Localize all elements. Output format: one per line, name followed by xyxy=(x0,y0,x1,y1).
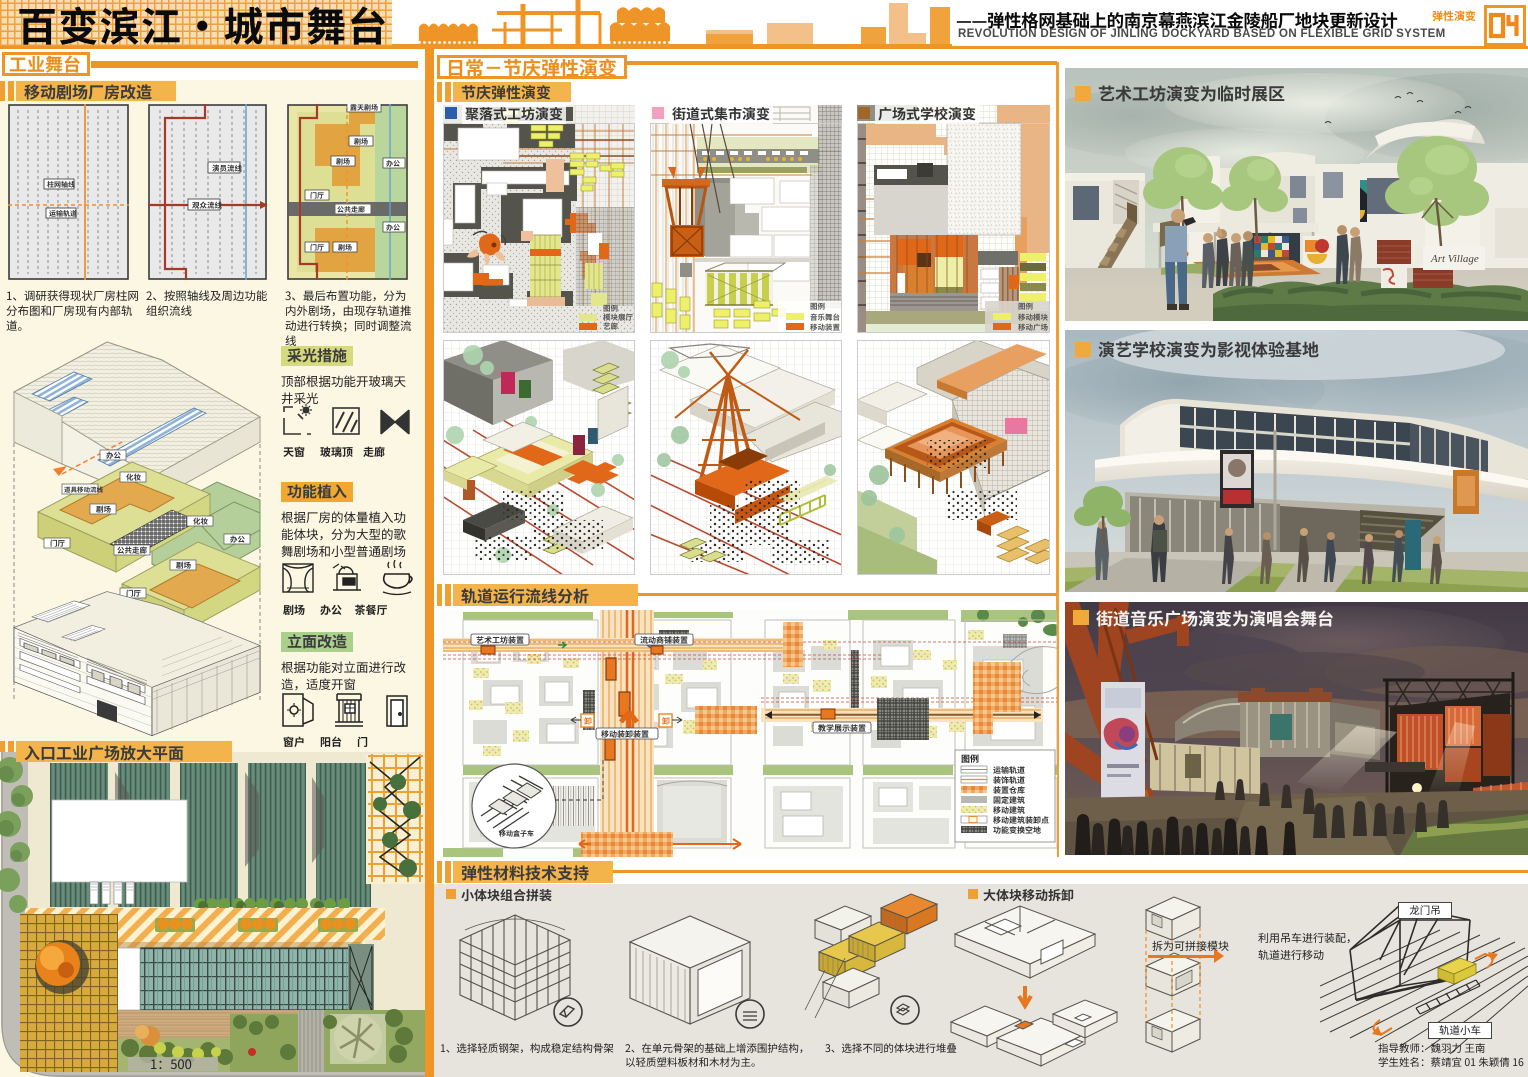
svg-text:演员流线: 演员流线 xyxy=(212,163,242,174)
svg-text:门厅: 门厅 xyxy=(310,191,324,201)
svg-text:艺术工坊装置: 艺术工坊装置 xyxy=(476,635,524,646)
svg-text:化妆: 化妆 xyxy=(126,472,141,483)
svg-text:卸: 卸 xyxy=(584,716,592,727)
svg-text:图例: 图例 xyxy=(810,301,825,312)
svg-text:图例: 图例 xyxy=(1018,301,1034,312)
svg-text:街道音乐广场演变为演唱会舞台: 街道音乐广场演变为演唱会舞台 xyxy=(1096,605,1334,630)
svg-text:办公: 办公 xyxy=(386,159,400,169)
svg-text:道具移动流线: 道具移动流线 xyxy=(64,484,104,494)
svg-text:移动装卸装置: 移动装卸装置 xyxy=(601,729,649,740)
svg-text:办公: 办公 xyxy=(230,534,245,545)
svg-text:移动盒子车: 移动盒子车 xyxy=(499,829,534,839)
svg-text:移动广场: 移动广场 xyxy=(1018,322,1048,333)
svg-text:门厅: 门厅 xyxy=(50,538,65,549)
svg-text:教学展示装置: 教学展示装置 xyxy=(818,723,866,734)
svg-text:露天剧场: 露天剧场 xyxy=(350,104,378,113)
svg-text:运输轨道: 运输轨道 xyxy=(49,209,77,219)
svg-text:剧场: 剧场 xyxy=(354,137,368,147)
svg-text:剧场: 剧场 xyxy=(96,504,111,515)
svg-text:Art Village: Art Village xyxy=(1430,253,1479,265)
svg-text:办公: 办公 xyxy=(386,223,400,233)
svg-text:公共走廊: 公共走廊 xyxy=(337,205,365,215)
svg-text:公共走廊: 公共走廊 xyxy=(117,545,147,556)
svg-text:功能变换空地: 功能变换空地 xyxy=(993,825,1041,836)
svg-text:艺廊: 艺廊 xyxy=(603,321,618,332)
svg-text:艺术工坊演变为临时展区: 艺术工坊演变为临时展区 xyxy=(1098,80,1285,105)
svg-text:柱网轴线: 柱网轴线 xyxy=(47,180,75,190)
svg-text:流动商铺装置: 流动商铺装置 xyxy=(640,635,688,646)
svg-text:剧场: 剧场 xyxy=(336,157,350,167)
svg-text:1：500: 1：500 xyxy=(150,1054,192,1073)
svg-text:移动装置: 移动装置 xyxy=(810,322,840,333)
svg-text:门厅: 门厅 xyxy=(310,243,324,253)
svg-text:观众流线: 观众流线 xyxy=(192,200,222,211)
svg-text:剧场: 剧场 xyxy=(338,243,352,253)
svg-text:剧场: 剧场 xyxy=(176,560,191,571)
svg-text:演艺学校演变为影视体验基地: 演艺学校演变为影视体验基地 xyxy=(1098,336,1319,361)
svg-text:图例: 图例 xyxy=(961,752,979,765)
svg-text:卸: 卸 xyxy=(662,716,670,727)
svg-text:化妆: 化妆 xyxy=(193,516,208,527)
svg-text:办公: 办公 xyxy=(106,450,121,461)
